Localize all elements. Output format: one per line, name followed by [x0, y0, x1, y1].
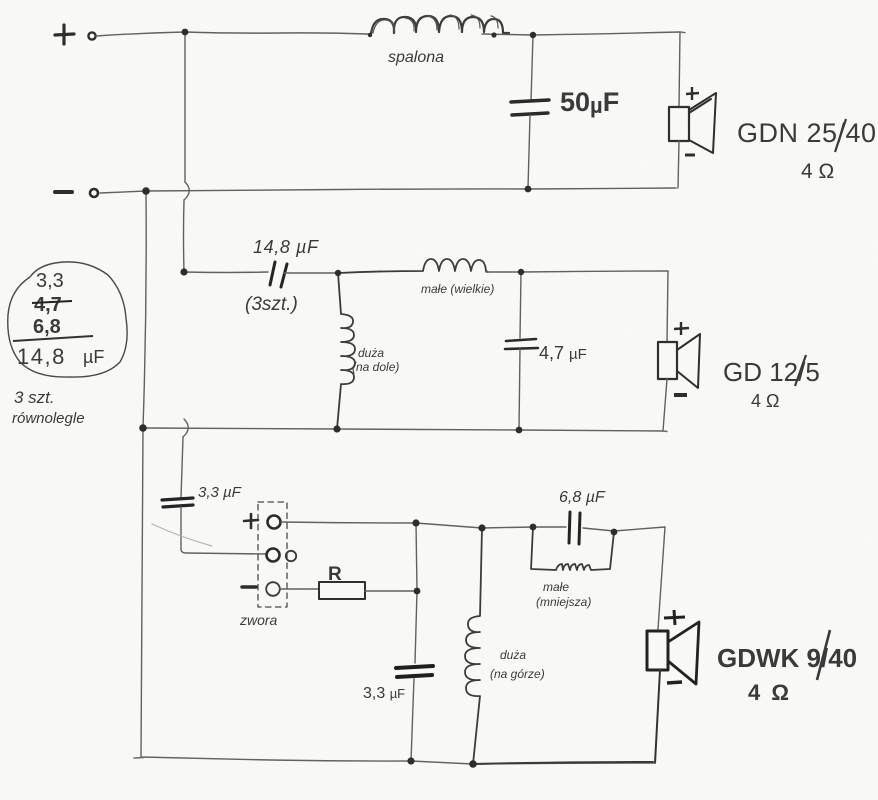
svg-text:duża: duża — [500, 648, 526, 662]
svg-text:małe: małe — [543, 580, 569, 594]
svg-text:3 szt.: 3 szt. — [14, 388, 55, 407]
svg-text:3,3 µF: 3,3 µF — [198, 484, 242, 501]
svg-text:3,3 µF: 3,3 µF — [363, 685, 405, 702]
svg-text:GD 12/5: GD 12/5 — [723, 357, 820, 387]
svg-text:4 Ω: 4 Ω — [748, 680, 792, 705]
svg-text:4,7: 4,7 — [34, 294, 62, 316]
svg-text:6,8: 6,8 — [33, 316, 61, 338]
svg-text:równolegle: równolegle — [12, 410, 85, 427]
svg-text:(3szt.): (3szt.) — [245, 294, 298, 315]
svg-text:4 Ω: 4 Ω — [801, 160, 834, 183]
svg-text:4,7 µF: 4,7 µF — [539, 343, 587, 363]
svg-text:14,8: 14,8 — [17, 344, 66, 369]
svg-text:6,8 µF: 6,8 µF — [559, 489, 606, 506]
svg-text:R: R — [328, 564, 342, 585]
svg-text:14,8 µF: 14,8 µF — [253, 237, 319, 257]
svg-text:(na górze): (na górze) — [490, 667, 545, 681]
svg-text:3,3: 3,3 — [36, 270, 64, 292]
svg-text:GDWK 9/40: GDWK 9/40 — [717, 643, 857, 673]
svg-text:spalona: spalona — [388, 49, 444, 66]
svg-text:zwora: zwora — [239, 612, 278, 628]
svg-text:µF: µF — [83, 347, 104, 367]
svg-text:duża: duża — [358, 346, 384, 360]
svg-text:GDN 25/40: GDN 25/40 — [737, 118, 877, 148]
svg-text:(na dole): (na dole) — [352, 360, 399, 374]
svg-text:małe (wielkie): małe (wielkie) — [421, 282, 494, 296]
svg-text:4 Ω: 4 Ω — [751, 391, 779, 411]
svg-text:(mniejsza): (mniejsza) — [536, 595, 591, 609]
svg-text:50µF: 50µF — [560, 87, 619, 118]
